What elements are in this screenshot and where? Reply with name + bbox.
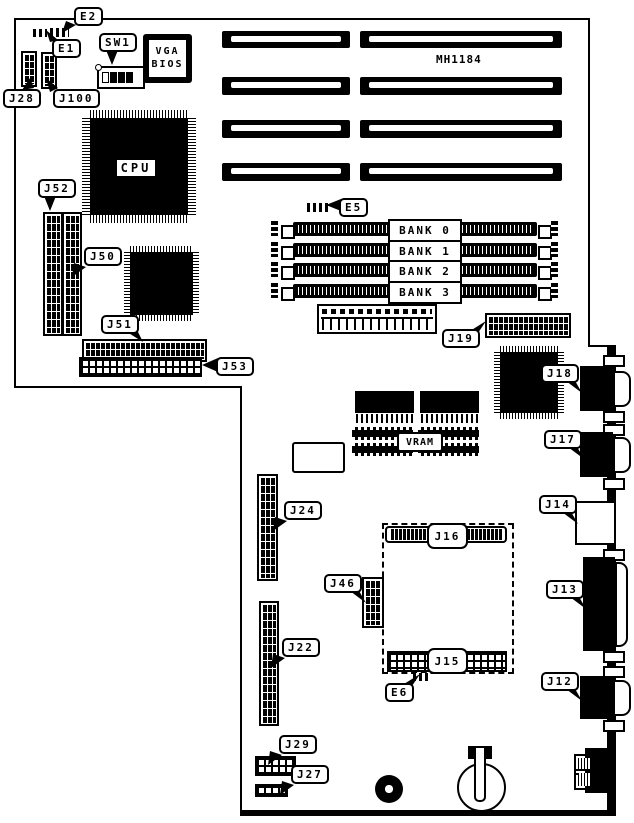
mounting-tab <box>603 478 625 490</box>
dip-switch-position-1 <box>102 72 109 83</box>
simm-latch <box>538 266 552 280</box>
cpu-label: CPU <box>117 160 155 176</box>
callout-j28: J28 <box>3 89 41 108</box>
callout-j29-tail <box>268 751 282 765</box>
simm-latch <box>538 287 552 301</box>
callout-j18: J18 <box>541 364 579 383</box>
callout-j27: J27 <box>291 765 329 784</box>
isa-slot-4 <box>360 77 562 95</box>
isa-slot-1 <box>222 31 350 48</box>
callout-j22: J22 <box>282 638 320 657</box>
callout-e5: E5 <box>339 198 368 217</box>
board-edge-bottom <box>240 810 616 816</box>
callout-j52: J52 <box>38 179 76 198</box>
simm-latch <box>281 246 295 260</box>
mounting-tab <box>603 411 625 423</box>
callout-e2: E2 <box>74 7 103 26</box>
port-j12-shell <box>613 680 631 716</box>
simm-endcap <box>551 242 558 257</box>
isa-slot-8 <box>360 163 562 181</box>
bank3-label: BANK 3 <box>388 281 462 304</box>
cpu-pins-bottom <box>90 215 188 223</box>
isa-slot-7 <box>222 163 350 181</box>
crystal-oscillator <box>292 442 345 473</box>
bank0-label: BANK 0 <box>388 219 462 242</box>
speaker <box>375 775 403 803</box>
connector-j53 <box>79 357 202 377</box>
callout-j24-tail <box>273 517 287 531</box>
vga-bios-label: VGA BIOS <box>147 38 188 79</box>
power-connector-dashes <box>322 309 432 314</box>
j16-label: J16 <box>427 523 468 549</box>
simm-latch <box>281 225 295 239</box>
callout-j51: J51 <box>101 315 139 334</box>
vga-bios-chip: VGA BIOS <box>143 34 192 83</box>
callout-j52-tail <box>44 196 58 211</box>
simm-endcap <box>271 262 278 277</box>
vram-label: VRAM <box>397 432 443 452</box>
callout-j50-tail <box>72 263 86 277</box>
vram-chip-2 <box>420 391 479 413</box>
connector-j19 <box>485 313 571 338</box>
board-edge-right-thin <box>588 18 590 347</box>
cpu-pins-left <box>82 118 90 215</box>
callout-j27-tail <box>280 781 294 795</box>
vram-chip-2-pins <box>421 414 478 423</box>
callout-j53: J53 <box>216 357 254 376</box>
simm-endcap <box>551 221 558 236</box>
callout-j29: J29 <box>279 735 317 754</box>
callout-j50: J50 <box>84 247 122 266</box>
callout-j12: J12 <box>541 672 579 691</box>
port-j18-body <box>580 366 613 411</box>
callout-j46: J46 <box>324 574 362 593</box>
sw1-pin1-dot <box>95 64 102 71</box>
isa-slot-2 <box>360 31 562 48</box>
callout-j22-tail <box>271 654 285 668</box>
asic-pins-right <box>193 252 199 315</box>
port-j13-body <box>583 557 615 651</box>
isa-slot-5 <box>222 120 350 138</box>
asic-chip <box>130 252 193 315</box>
port-j14 <box>575 501 616 545</box>
asic-pins-bottom <box>130 315 193 321</box>
simm-endcap <box>551 283 558 298</box>
callout-j100: J100 <box>53 89 100 108</box>
dip-switch-position-2 <box>110 72 117 83</box>
simm-latch <box>538 225 552 239</box>
bank2-label: BANK 2 <box>388 260 462 283</box>
simm-latch <box>281 266 295 280</box>
motherboard-diagram: MH1184 VGA BIOS CPU BANK 0 <box>0 0 634 823</box>
isa-slot-3 <box>222 77 350 95</box>
simm-endcap <box>551 262 558 277</box>
vram-chip-1 <box>355 391 414 413</box>
cpu-pins-right <box>188 118 196 215</box>
callout-j17: J17 <box>544 430 582 449</box>
simm-endcap <box>271 283 278 298</box>
board-edge-step-h <box>14 386 242 388</box>
callout-j19: J19 <box>442 329 480 348</box>
callout-sw1: SW1 <box>99 33 137 52</box>
callout-e6: E6 <box>385 683 414 702</box>
callout-e1: E1 <box>52 39 81 58</box>
j15-label: J15 <box>427 648 468 674</box>
cpu-pins-top <box>90 110 188 118</box>
port-j13-shell <box>615 562 628 647</box>
connector-j52 <box>43 212 63 336</box>
callout-j24: J24 <box>284 501 322 520</box>
board-edge-step-v <box>240 386 242 814</box>
dip-switch-position-4 <box>126 72 133 83</box>
simm-latch <box>281 287 295 301</box>
isa-slot-6 <box>360 120 562 138</box>
port-j18-shell <box>613 371 631 407</box>
port-j17-body <box>580 432 613 477</box>
simm-latch <box>538 246 552 260</box>
mounting-tab <box>603 651 625 663</box>
battery-lever <box>474 746 486 802</box>
board-edge-left <box>14 18 16 388</box>
mounting-tab <box>603 720 625 732</box>
dip-switch-position-3 <box>118 72 125 83</box>
simm-endcap <box>271 242 278 257</box>
power-connector <box>317 304 437 334</box>
bottom-port-plug-2 <box>574 769 594 790</box>
dip-switch-sw1 <box>97 66 145 89</box>
callout-j14: J14 <box>539 495 577 514</box>
port-j12-body <box>580 676 613 719</box>
power-connector-cells <box>321 317 433 330</box>
callout-j13: J13 <box>546 580 584 599</box>
vram-chip-1-pins <box>356 414 413 423</box>
simm-endcap <box>271 221 278 236</box>
port-j17-shell <box>613 437 631 473</box>
callout-sw1-tail <box>106 50 120 65</box>
model-number: MH1184 <box>436 53 482 66</box>
j18-chip-pins-bottom <box>500 413 558 419</box>
